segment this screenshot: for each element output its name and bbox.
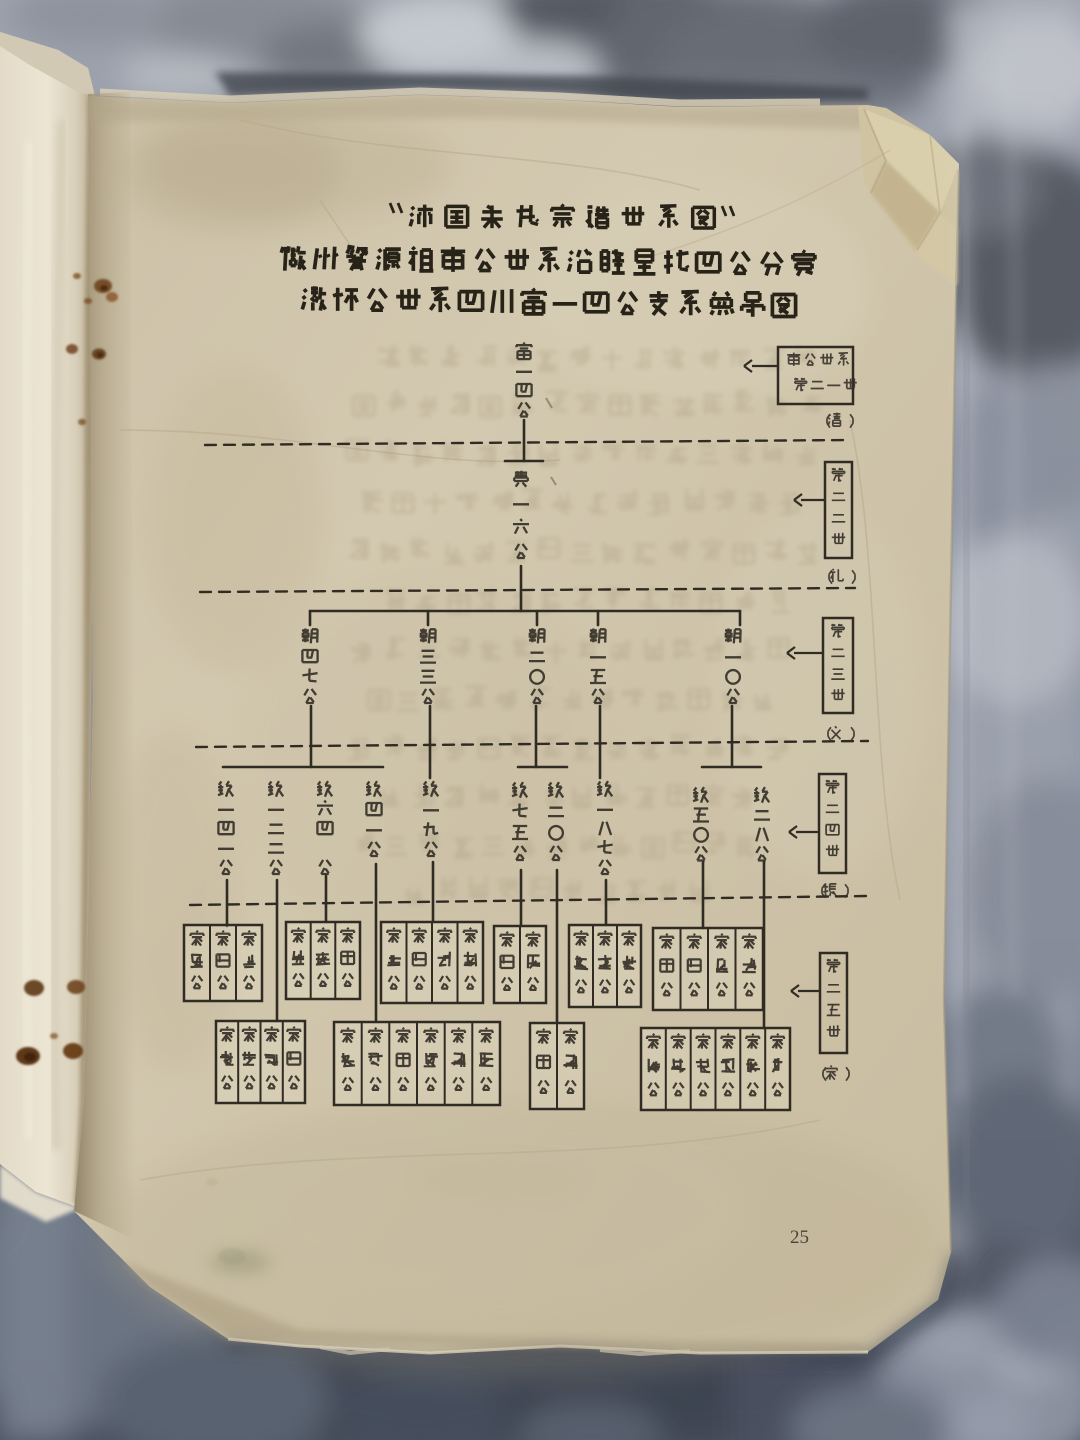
svg-text:25: 25 — [790, 1227, 809, 1248]
